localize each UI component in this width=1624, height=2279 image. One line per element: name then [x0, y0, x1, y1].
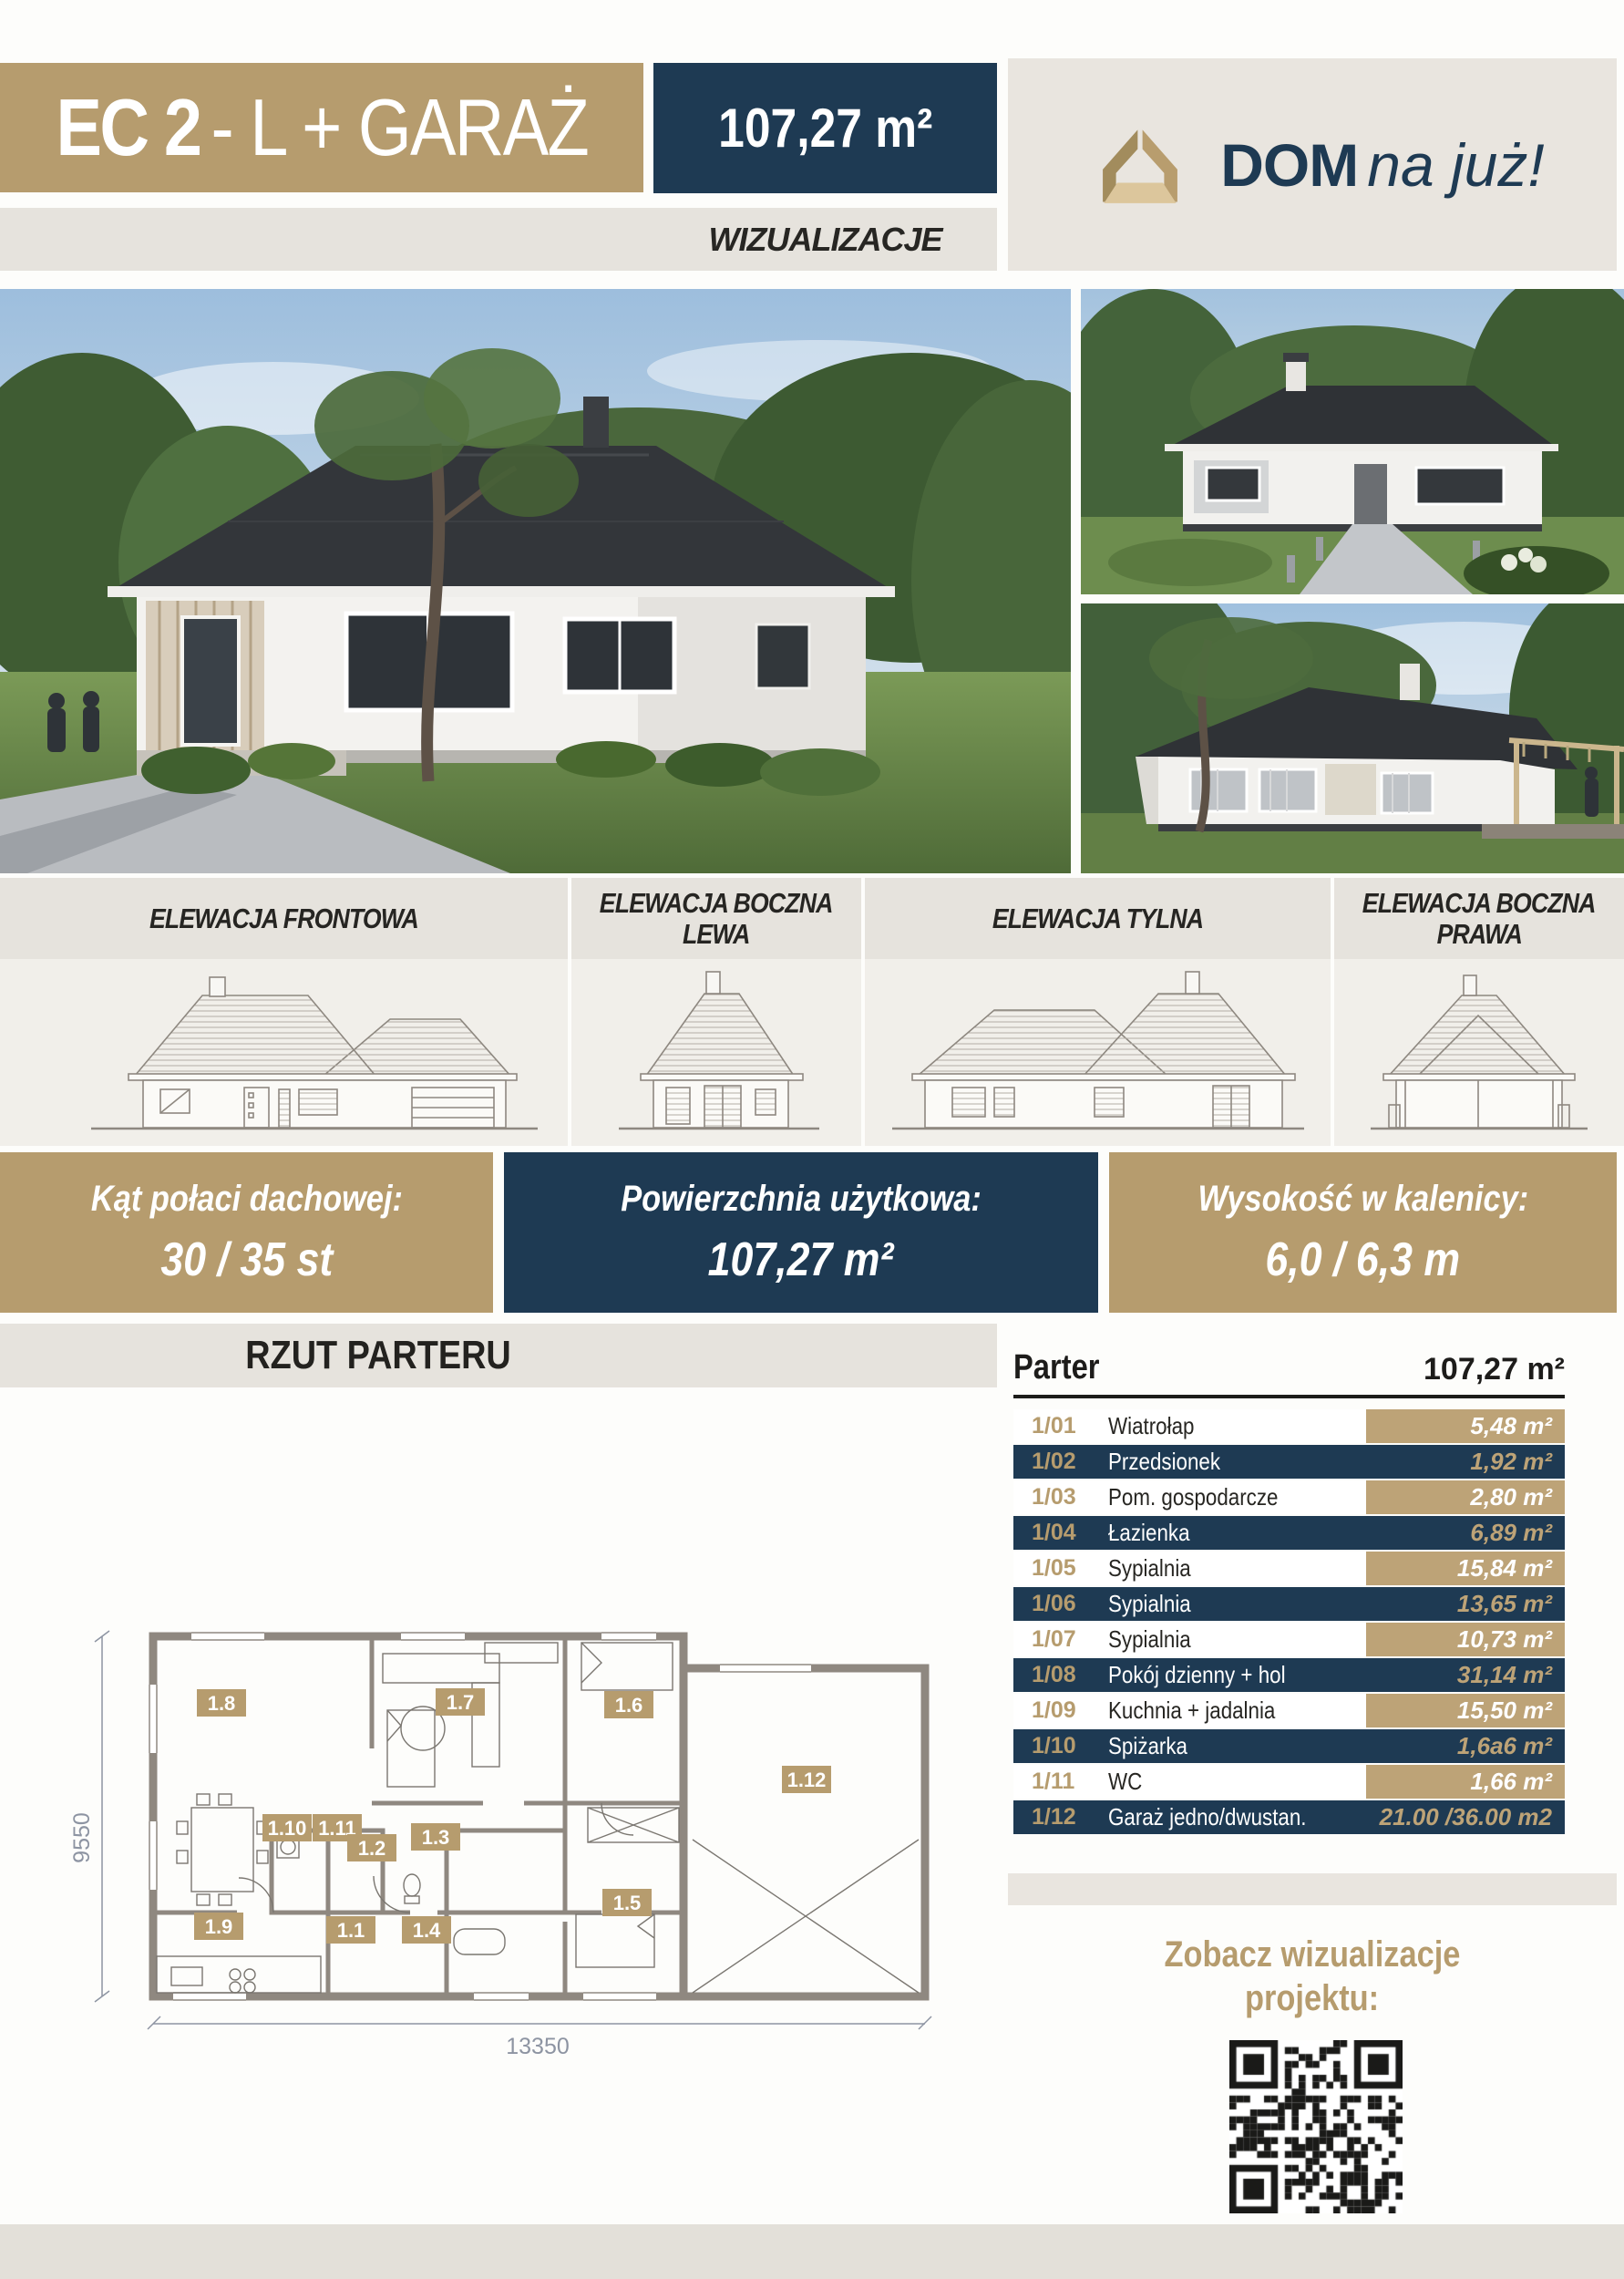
room-number: 1/03: [1032, 1484, 1088, 1511]
brand-name-bold: DOM: [1220, 131, 1358, 199]
room-chip: 1.9: [194, 1913, 243, 1940]
qr-caption: Zobacz wizualizacje projektu:: [1008, 1933, 1617, 2020]
room-chip: 1.2: [347, 1834, 396, 1861]
elevation-header-left: ELEWACJA BOCZNALEWA: [571, 878, 861, 959]
project-suffix: - L + GARAŻ: [211, 82, 588, 172]
room-area: 10,73 m²: [1366, 1623, 1565, 1656]
qr-code: [1229, 2040, 1403, 2213]
spec-usable-area: Powierzchnia użytkowa: 107,27 m²: [504, 1152, 1098, 1313]
project-title-banner: EC 2- L + GARAŻ: [0, 63, 643, 192]
visualizations-section-bar: WIZUALIZACJE: [0, 208, 997, 271]
room-area: 15,50 m²: [1366, 1694, 1565, 1727]
room-area: 13,65 m²: [1366, 1587, 1565, 1621]
table-title: Parter: [1013, 1348, 1099, 1387]
room-area: 15,84 m²: [1366, 1552, 1565, 1585]
svg-text:1.8: 1.8: [208, 1692, 236, 1715]
elevation-header-rear: ELEWACJA TYLNA: [865, 878, 1331, 959]
room-number: 1/04: [1032, 1520, 1088, 1546]
room-name: Przedsionek: [1108, 1448, 1220, 1476]
room-number: 1/10: [1032, 1733, 1088, 1759]
plan-width-dimension: 13350: [506, 2034, 570, 2059]
room-chip: 1.12: [782, 1766, 831, 1793]
room-chip: 1.1: [326, 1916, 375, 1944]
room-number: 1/11: [1032, 1769, 1088, 1795]
room-number: 1/12: [1032, 1804, 1088, 1830]
svg-text:1.4: 1.4: [413, 1919, 441, 1942]
room-row: 1/10Spiżarka1,6a6 m²: [1013, 1729, 1565, 1763]
total-area-badge: 107,27 m²: [653, 63, 997, 193]
floor-plan-title: RZUT PARTERU: [53, 1324, 704, 1387]
room-row: 1/12Garaż jedno/dwustan.21.00 /36.00 m2: [1013, 1800, 1565, 1834]
room-row: 1/06Sypialnia13,65 m²: [1013, 1587, 1565, 1621]
svg-text:1.1: 1.1: [337, 1919, 365, 1942]
brand-logo-panel: DOMna już!: [1008, 58, 1617, 271]
room-row: 1/07Sypialnia10,73 m²: [1013, 1623, 1565, 1656]
room-area: 5,48 m²: [1366, 1409, 1565, 1443]
room-area: 1,66 m²: [1366, 1765, 1565, 1799]
elevation-drawing-front: [0, 959, 568, 1146]
room-name: Pom. gospodarcze: [1108, 1483, 1278, 1511]
footer-strip: [0, 2224, 1624, 2279]
visualization-photo-main: [0, 289, 1071, 873]
room-name: Wiatrołap: [1108, 1412, 1194, 1440]
room-table: Parter 107,27 m² 1/01Wiatrołap5,48 m²1/0…: [1013, 1340, 1565, 1836]
room-chip: 1.3: [411, 1823, 460, 1851]
room-number: 1/05: [1032, 1555, 1088, 1582]
room-row: 1/01Wiatrołap5,48 m²: [1013, 1409, 1565, 1443]
svg-text:1.2: 1.2: [358, 1837, 386, 1860]
plan-height-dimension: 9550: [69, 1812, 95, 1863]
room-name: Łazienka: [1108, 1519, 1190, 1547]
room-number: 1/08: [1032, 1662, 1088, 1688]
room-area: 1,92 m²: [1366, 1445, 1565, 1479]
floor-plan-drawing: 9550 13350 1.81.71.61.121.101.111.21.31.…: [55, 1612, 975, 2068]
room-row: 1/09Kuchnia + jadalnia15,50 m²: [1013, 1694, 1565, 1727]
room-row: 1/02Przedsionek1,92 m²: [1013, 1445, 1565, 1479]
room-chip: 1.7: [436, 1688, 485, 1716]
elevation-header-front: ELEWACJA FRONTOWA: [0, 878, 568, 959]
room-row: 1/08Pokój dzienny + hol31,14 m²: [1013, 1658, 1565, 1692]
room-number: 1/07: [1032, 1626, 1088, 1653]
spec-usable-area-value: 107,27 m²: [708, 1232, 894, 1287]
spec-roof-angle: Kąt połaci dachowej: 30 / 35 st: [0, 1152, 493, 1313]
visualization-photo-front: [1081, 289, 1624, 594]
room-name: Pokój dzienny + hol: [1108, 1661, 1286, 1689]
room-area: 31,14 m²: [1366, 1658, 1565, 1692]
room-name: Sypialnia: [1108, 1554, 1191, 1583]
room-row: 1/05Sypialnia15,84 m²: [1013, 1552, 1565, 1585]
room-number: 1/01: [1032, 1413, 1088, 1439]
spec-ridge-height-value: 6,0 / 6,3 m: [1266, 1232, 1461, 1287]
floor-plan-title-bar: RZUT PARTERU: [0, 1324, 997, 1387]
room-area: 1,6a6 m²: [1366, 1729, 1565, 1763]
room-number-chips: 1.81.71.61.121.101.111.21.31.91.11.41.5: [194, 1688, 831, 1944]
room-chip: 1.4: [402, 1916, 451, 1944]
table-divider: [1013, 1395, 1565, 1398]
project-code: EC 2: [56, 82, 200, 172]
room-area: 2,80 m²: [1366, 1480, 1565, 1514]
svg-text:1.12: 1.12: [787, 1769, 827, 1791]
room-area: 21.00 /36.00 m2: [1366, 1800, 1565, 1834]
elevation-header-right: ELEWACJA BOCZNAPRAWA: [1334, 878, 1624, 959]
svg-text:1.3: 1.3: [422, 1826, 450, 1849]
spec-roof-angle-value: 30 / 35 st: [160, 1232, 333, 1287]
room-row: 1/03Pom. gospodarcze2,80 m²: [1013, 1480, 1565, 1514]
brand-name-italic: na już!: [1367, 131, 1544, 199]
spec-ridge-height-label: Wysokość w kalenicy:: [1197, 1179, 1528, 1220]
spec-roof-angle-label: Kąt połaci dachowej:: [90, 1179, 402, 1220]
elevation-drawing-right: [1334, 959, 1624, 1146]
room-area: 6,89 m²: [1366, 1516, 1565, 1550]
svg-text:1.5: 1.5: [613, 1892, 642, 1914]
room-name: WC: [1108, 1768, 1142, 1796]
visualization-photo-rear: [1081, 603, 1624, 873]
spec-usable-area-label: Powierzchnia użytkowa:: [621, 1179, 982, 1220]
room-name: Spiżarka: [1108, 1732, 1187, 1760]
elevation-drawing-rear: [865, 959, 1331, 1146]
svg-text:1.6: 1.6: [615, 1694, 643, 1717]
room-chip: 1.6: [604, 1691, 653, 1718]
room-number: 1/02: [1032, 1449, 1088, 1475]
room-row: 1/04Łazienka6,89 m²: [1013, 1516, 1565, 1550]
room-chip: 1.8: [197, 1689, 246, 1717]
visualizations-label: WIZUALIZACJE: [653, 208, 997, 271]
qr-section-band: [1008, 1873, 1617, 1905]
room-name: Sypialnia: [1108, 1625, 1191, 1654]
table-total-area: 107,27 m²: [1424, 1352, 1565, 1387]
room-number: 1/06: [1032, 1591, 1088, 1617]
svg-text:1.7: 1.7: [447, 1691, 475, 1714]
house-logo-icon: [1080, 111, 1200, 218]
room-name: Garaż jedno/dwustan.: [1108, 1803, 1307, 1831]
room-row: 1/11WC1,66 m²: [1013, 1765, 1565, 1799]
room-chip: 1.10: [262, 1814, 312, 1841]
spec-ridge-height: Wysokość w kalenicy: 6,0 / 6,3 m: [1109, 1152, 1617, 1313]
elevation-drawing-left: [571, 959, 861, 1146]
svg-text:1.9: 1.9: [205, 1915, 233, 1938]
room-chip: 1.5: [602, 1889, 652, 1916]
room-name: Kuchnia + jadalnia: [1108, 1696, 1275, 1725]
room-number: 1/09: [1032, 1697, 1088, 1724]
room-name: Sypialnia: [1108, 1590, 1191, 1618]
svg-text:1.10: 1.10: [268, 1817, 307, 1840]
